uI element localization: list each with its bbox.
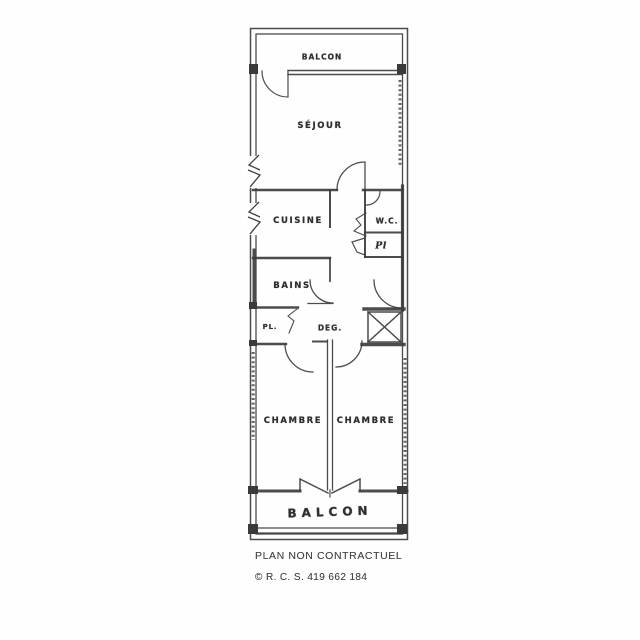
room-label-sejour: SÉJOUR bbox=[297, 121, 342, 131]
duct-shaft-cross bbox=[368, 312, 401, 342]
room-label-degagement: DEG. bbox=[318, 324, 342, 333]
balcony-top-wall bbox=[288, 71, 402, 75]
wall-cap bbox=[248, 524, 258, 534]
room-label-balcon-bottom: BALCON bbox=[287, 504, 373, 521]
pl-left-door-leaf bbox=[288, 309, 297, 333]
chambre-right-door-arc bbox=[336, 341, 362, 367]
wall-cap bbox=[248, 486, 258, 494]
wall-cap bbox=[397, 64, 406, 74]
chambre-left-door-arc bbox=[285, 344, 313, 372]
room-label-balcon-top: BALCON bbox=[302, 53, 342, 62]
bains-door-arc bbox=[308, 280, 333, 304]
room-label-wc: W.C. bbox=[376, 217, 399, 226]
balcony-top-door-arc bbox=[262, 71, 288, 98]
rcs-registration-text: © R. C. S. 419 662 184 bbox=[255, 572, 367, 583]
wall-cap bbox=[249, 302, 257, 309]
wc-door-arc bbox=[367, 192, 381, 206]
wall-cap bbox=[397, 524, 407, 534]
floor-plan: BALCON SÉJOUR CUISINE W.C. Pl BAINS PL. … bbox=[0, 0, 640, 640]
left-wall-break-marks bbox=[247, 155, 260, 235]
plan-disclaimer-text: PLAN NON CONTRACTUEL bbox=[255, 550, 402, 562]
room-label-cuisine: CUISINE bbox=[273, 216, 323, 226]
room-label-placard-right: Pl bbox=[375, 241, 387, 252]
room-label-chambre-right: CHAMBRE bbox=[337, 416, 395, 426]
floor-plan-drawing bbox=[0, 0, 640, 640]
corridor-entry-door-arc bbox=[337, 162, 365, 190]
room-label-chambre-left: CHAMBRE bbox=[264, 416, 322, 426]
wall-cap bbox=[249, 340, 257, 346]
room-label-bains: BAINS bbox=[273, 281, 310, 291]
wall-cap bbox=[397, 486, 407, 494]
page: BALCON SÉJOUR CUISINE W.C. Pl BAINS PL. … bbox=[0, 0, 640, 640]
apartment-entry-door-arc bbox=[374, 280, 402, 308]
balcony-bottom-wall bbox=[257, 528, 403, 533]
pl-right-door-leaf bbox=[352, 238, 365, 255]
wall-cap bbox=[249, 64, 258, 74]
room-label-placard-left: PL. bbox=[263, 323, 278, 331]
central-dividing-wall bbox=[328, 340, 333, 490]
